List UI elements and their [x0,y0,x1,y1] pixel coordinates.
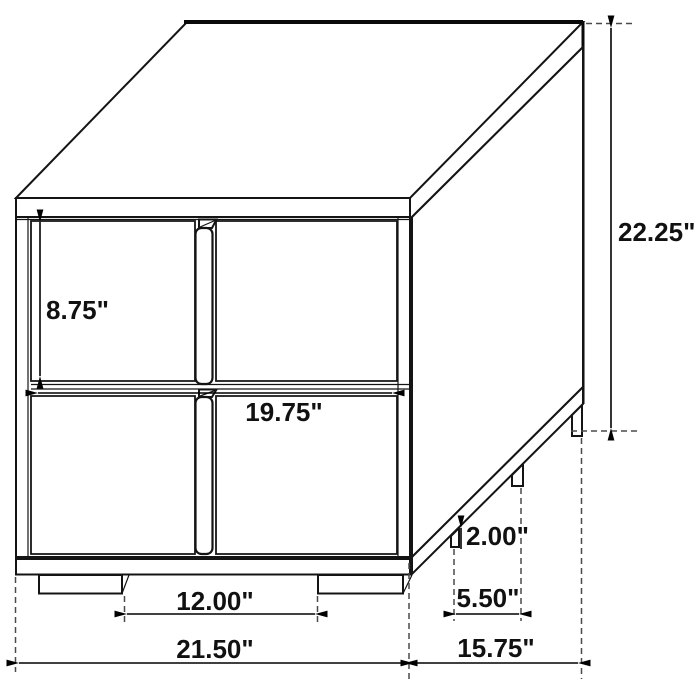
lower-drawer-handle [196,397,213,554]
overall-height-label: 22.25" [618,217,695,247]
front-left-leg-bevel [122,575,129,594]
side-leg-spacing-label: 5.50" [457,583,520,613]
drawer-height-label: 8.75" [46,295,109,325]
front-right-leg [318,575,403,594]
front-left-leg [39,575,122,594]
nightstand-dimension-diagram: 8.75" 19.75" 22.25" 2.00" 5.50" 12.00" 2… [0,0,700,700]
upper-drawer-handle [196,228,213,384]
front-base-band [16,559,410,575]
drawer-width-label: 19.75" [245,397,322,427]
front-right-leg-bevel [403,575,412,594]
drawer-front-lower-left [31,396,195,554]
dimension-diagram-canvas: 8.75" 19.75" 22.25" 2.00" 5.50" 12.00" 2… [0,0,700,700]
overall-width-label: 21.50" [176,634,253,664]
drawer-front-upper-right [216,221,397,381]
leg-height-label: 2.00" [466,521,529,551]
overall-depth-label: 15.75" [457,633,534,663]
top-slab-front-edge [16,198,410,217]
front-leg-spacing-label: 12.00" [176,586,253,616]
